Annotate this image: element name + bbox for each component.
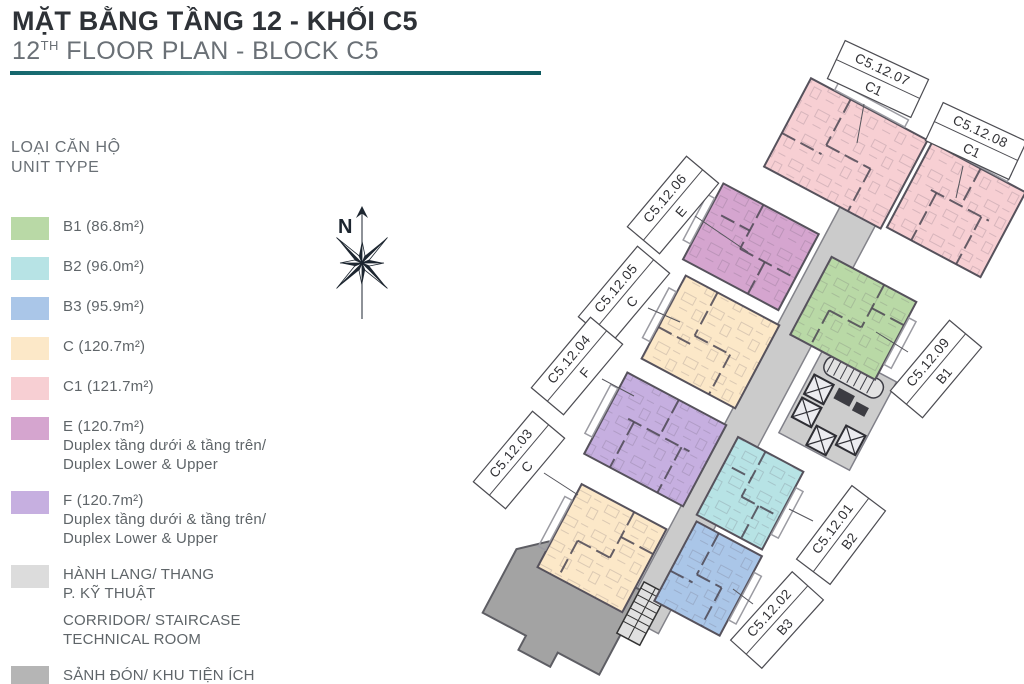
label-leader-line: [789, 509, 813, 521]
compass-rose: N: [337, 206, 388, 319]
unit-label-c5.12.03: C5.12.03C: [473, 411, 564, 508]
unit-label-c5.12.01: C5.12.01B2: [797, 486, 886, 585]
floor-plan-page: MẶT BẰNG TẦNG 12 - KHỐI C5 12TH FLOOR PL…: [0, 0, 1024, 684]
unit-label-c5.12.09: C5.12.09B1: [890, 320, 981, 417]
compass-north-label: N: [338, 216, 352, 238]
label-leader-line: [544, 473, 578, 495]
floor-plan-drawing: C5.12.07C1C5.12.08C1C5.12.06EC5.12.05CC5…: [0, 0, 1024, 684]
